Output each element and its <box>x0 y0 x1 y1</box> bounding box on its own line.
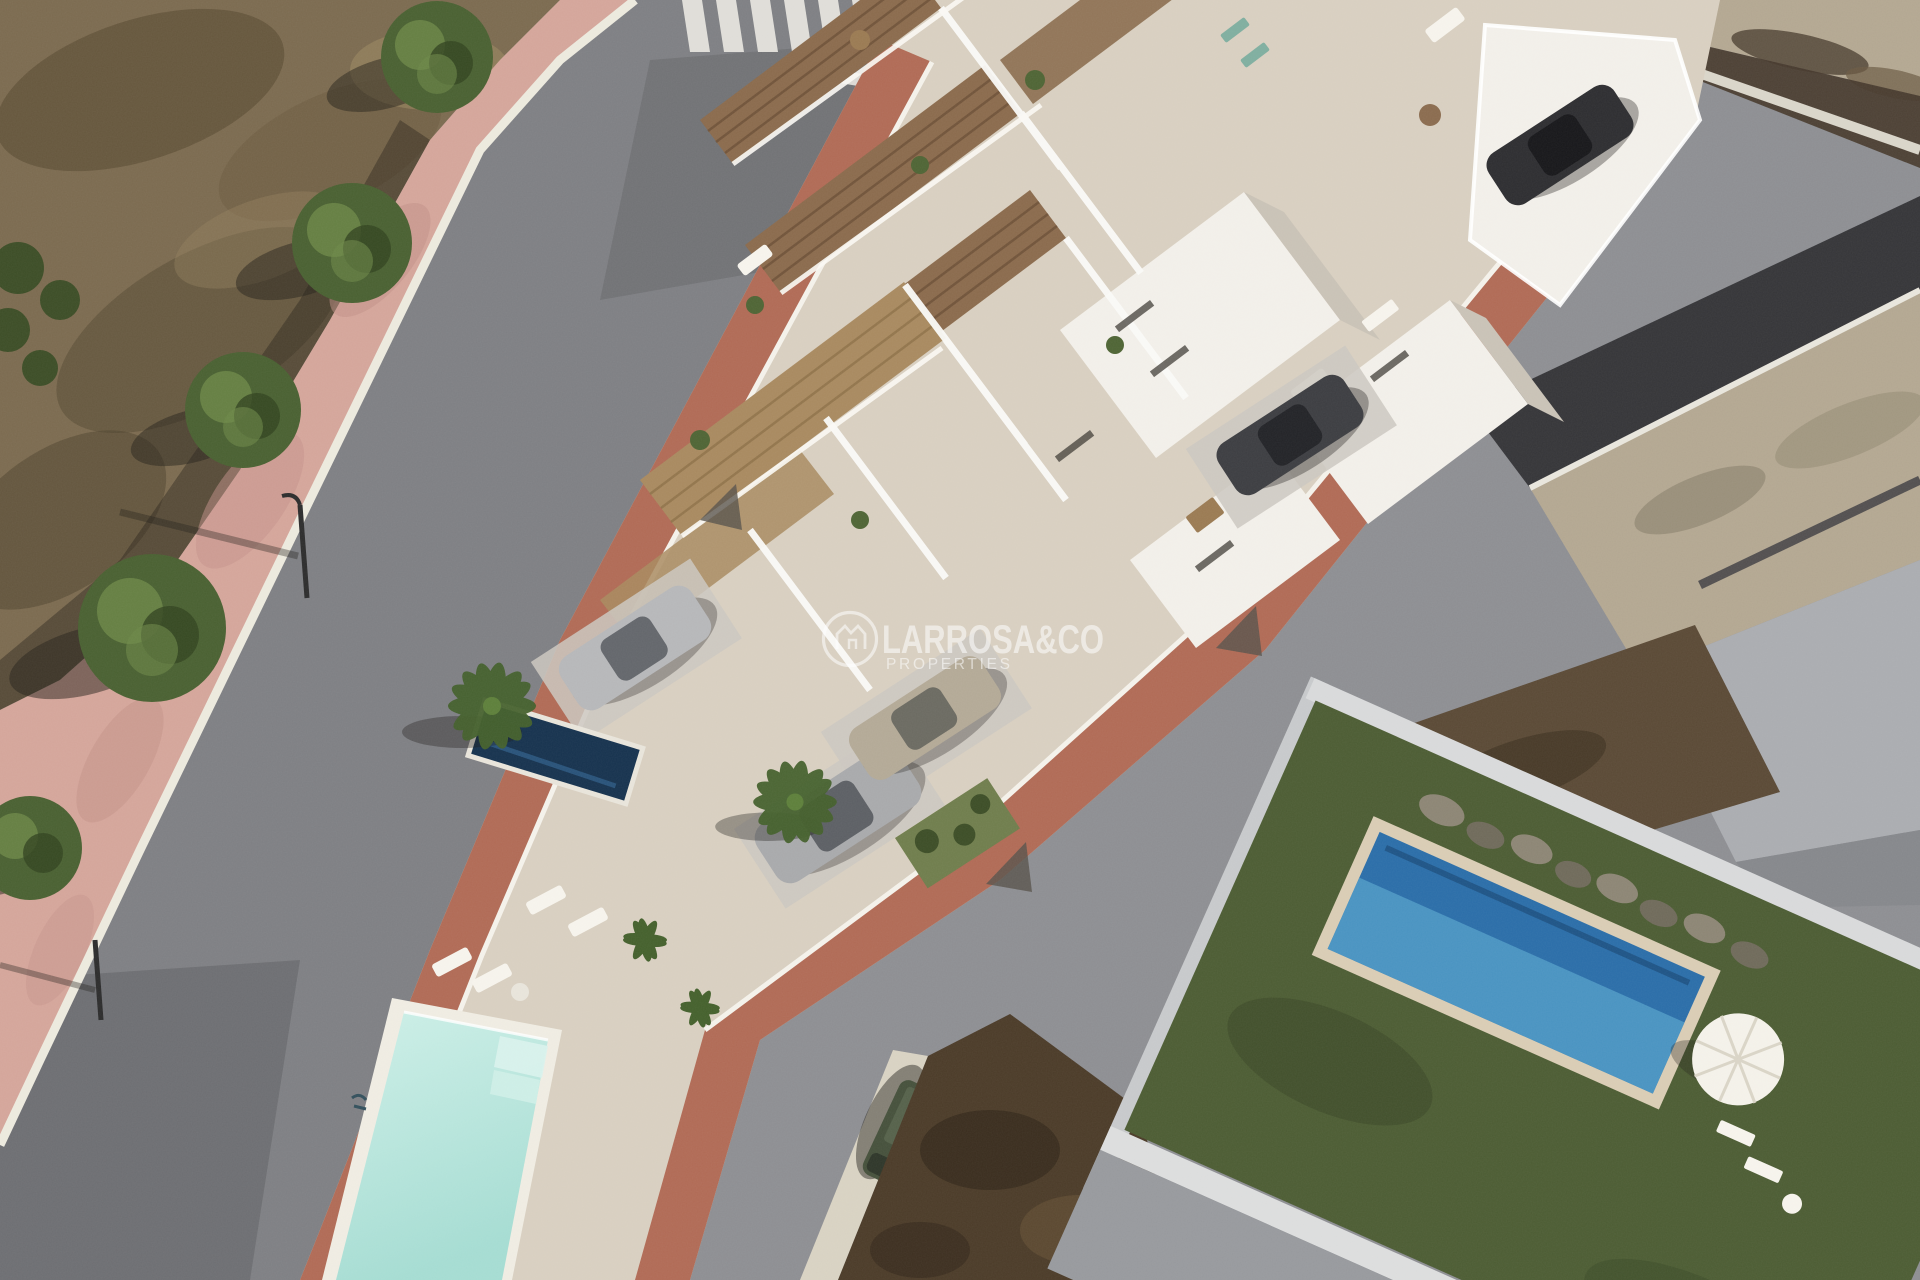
render-canvas: LARROSA&CO PROPERTIES <box>0 0 1920 1280</box>
aerial-property-render: LARROSA&CO PROPERTIES <box>0 0 1920 1280</box>
watermark-tagline: PROPERTIES <box>886 656 1010 673</box>
